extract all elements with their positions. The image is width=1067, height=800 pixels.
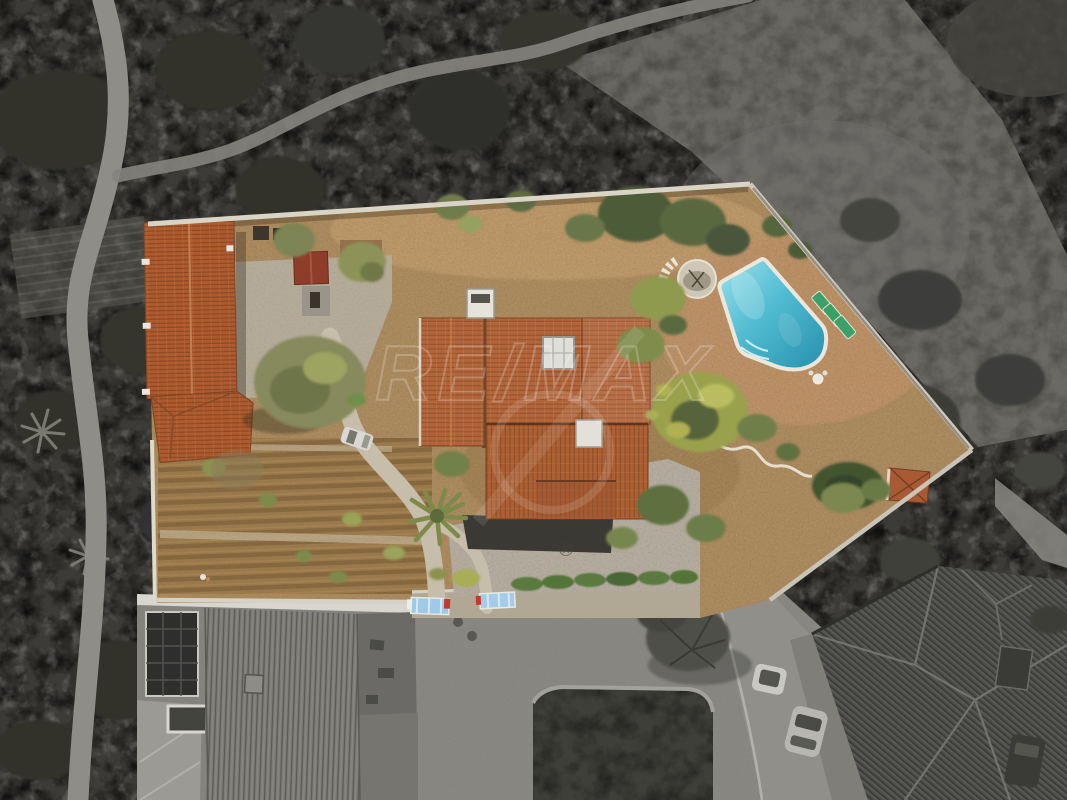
west-wing-roof	[420, 318, 484, 446]
aerial-photo-canvas: RE/MAX ®	[0, 0, 1067, 800]
gate-barrier-2	[476, 592, 516, 609]
roof-chimney	[995, 646, 1032, 690]
dog	[200, 574, 206, 580]
skylight	[543, 337, 574, 369]
solar-panel-array	[146, 612, 198, 696]
boundary-wall-south	[155, 600, 412, 602]
industrial-building	[137, 594, 418, 800]
chimney	[467, 289, 494, 318]
gate-barrier-1	[407, 597, 451, 614]
roof-skylight-box	[168, 706, 210, 732]
roof-vent-box	[245, 675, 264, 694]
gray-shed	[302, 286, 330, 316]
house-south-shadow	[462, 515, 613, 553]
aerial-photo: RE/MAX ®	[0, 0, 1067, 800]
roof-vent	[576, 420, 602, 447]
street-area	[410, 590, 852, 800]
